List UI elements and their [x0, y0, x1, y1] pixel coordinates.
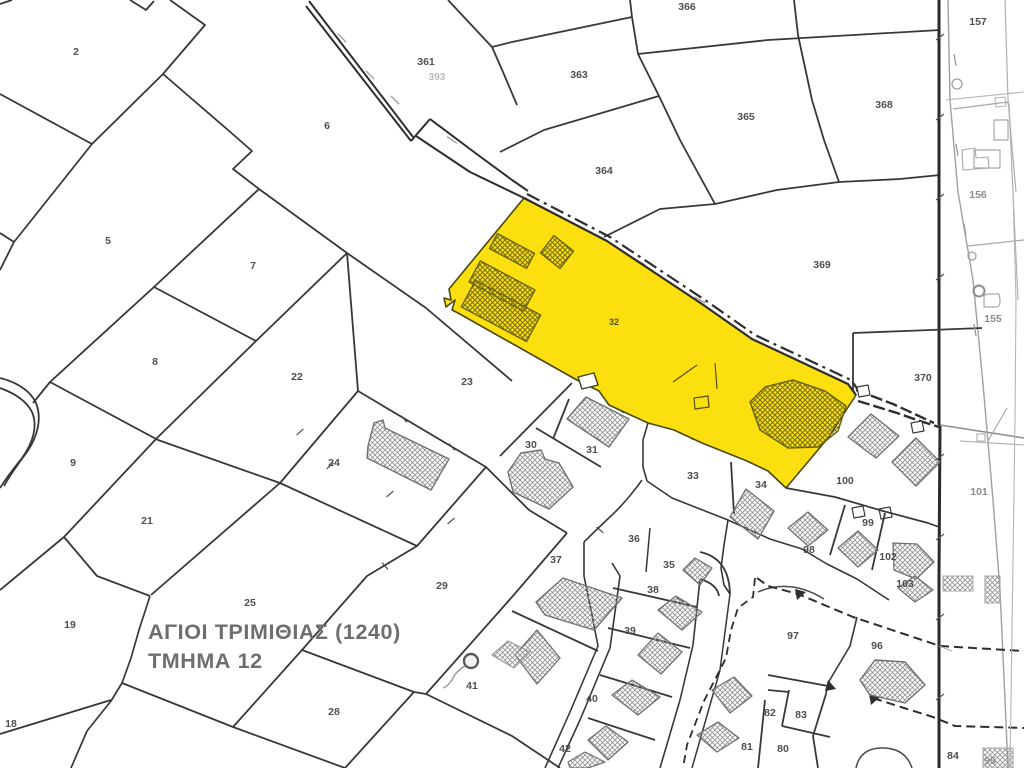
svg-text:42: 42 — [559, 743, 571, 755]
svg-text:7: 7 — [250, 260, 256, 272]
svg-text:84: 84 — [947, 750, 959, 762]
svg-text:19: 19 — [64, 619, 76, 631]
svg-text:156: 156 — [969, 189, 987, 201]
svg-text:99: 99 — [862, 517, 874, 529]
svg-text:ΑΓΙΟΙ ΤΡΙΜΙΘΙΑΣ (1240): ΑΓΙΟΙ ΤΡΙΜΙΘΙΑΣ (1240) — [148, 620, 401, 644]
svg-text:34: 34 — [755, 479, 767, 491]
svg-text:21: 21 — [141, 515, 153, 527]
svg-text:100: 100 — [836, 475, 854, 487]
svg-text:40: 40 — [586, 693, 598, 705]
svg-text:82: 82 — [764, 707, 776, 719]
svg-text:29: 29 — [436, 580, 448, 592]
svg-text:24: 24 — [328, 457, 340, 469]
svg-text:30: 30 — [525, 439, 537, 451]
svg-text:155: 155 — [984, 313, 1002, 325]
svg-text:96: 96 — [871, 640, 883, 652]
svg-text:8: 8 — [152, 356, 158, 368]
svg-text:98: 98 — [803, 544, 815, 556]
svg-text:33: 33 — [687, 470, 699, 482]
svg-text:25: 25 — [244, 597, 256, 609]
svg-text:38: 38 — [647, 584, 659, 596]
svg-text:370: 370 — [914, 372, 932, 384]
svg-text:2: 2 — [73, 46, 79, 58]
svg-text:81: 81 — [741, 741, 753, 753]
svg-text:ΤΜΗΜΑ 12: ΤΜΗΜΑ 12 — [148, 649, 263, 673]
svg-text:101: 101 — [970, 486, 988, 498]
svg-text:83: 83 — [795, 709, 807, 721]
svg-text:36: 36 — [628, 533, 640, 545]
svg-text:369: 369 — [813, 259, 831, 271]
svg-text:31: 31 — [586, 444, 598, 456]
svg-text:393: 393 — [429, 72, 446, 83]
svg-text:37: 37 — [550, 554, 562, 566]
svg-text:18: 18 — [5, 718, 17, 730]
svg-text:22: 22 — [291, 371, 303, 383]
svg-text:41: 41 — [466, 680, 478, 692]
svg-text:361: 361 — [417, 56, 435, 68]
svg-text:368: 368 — [875, 99, 893, 111]
svg-text:97: 97 — [787, 630, 799, 642]
svg-text:103: 103 — [896, 578, 914, 590]
svg-text:39: 39 — [624, 625, 636, 637]
svg-text:80: 80 — [777, 743, 789, 755]
svg-text:28: 28 — [328, 706, 340, 718]
svg-text:9: 9 — [70, 457, 76, 469]
svg-text:363: 363 — [570, 69, 588, 81]
svg-text:102: 102 — [879, 551, 897, 563]
svg-text:6: 6 — [324, 120, 330, 132]
svg-text:157: 157 — [969, 16, 987, 28]
svg-text:23: 23 — [461, 376, 473, 388]
svg-text:95: 95 — [984, 755, 996, 767]
svg-text:364: 364 — [595, 165, 613, 177]
svg-text:32: 32 — [609, 317, 619, 327]
svg-text:365: 365 — [737, 111, 755, 123]
svg-text:366: 366 — [678, 1, 696, 13]
svg-text:35: 35 — [663, 559, 675, 571]
svg-text:5: 5 — [105, 235, 111, 247]
